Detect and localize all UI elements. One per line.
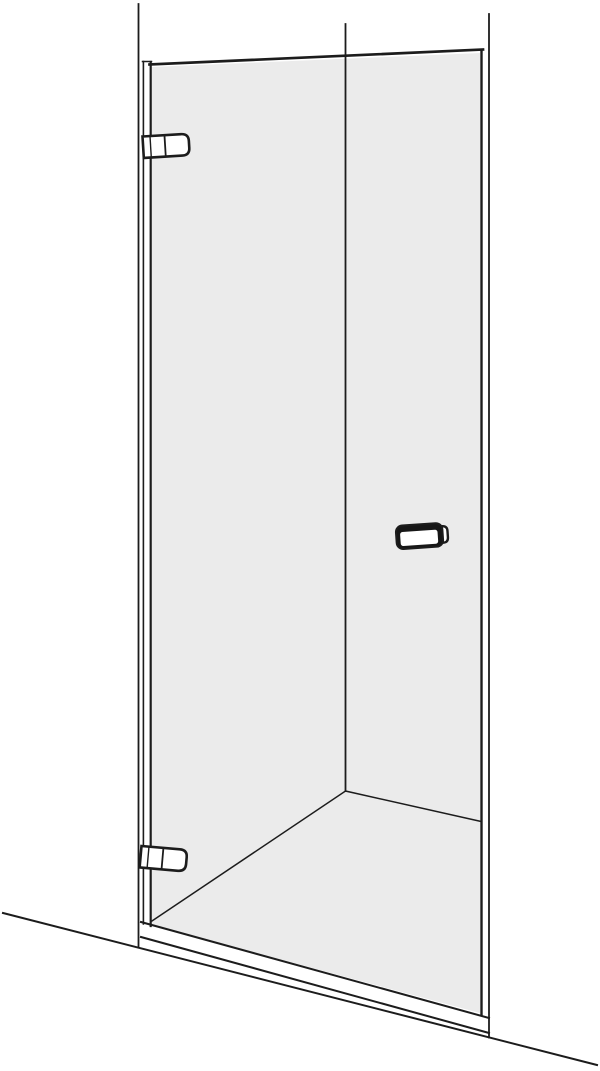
door-handle [396, 522, 449, 549]
shower-door-diagram [0, 0, 600, 1071]
top-hinge-divider [165, 136, 166, 156]
top-hinge [143, 134, 190, 158]
diagram-canvas [0, 0, 600, 1071]
handle-face [400, 530, 438, 547]
bottom-hinge [140, 846, 188, 871]
